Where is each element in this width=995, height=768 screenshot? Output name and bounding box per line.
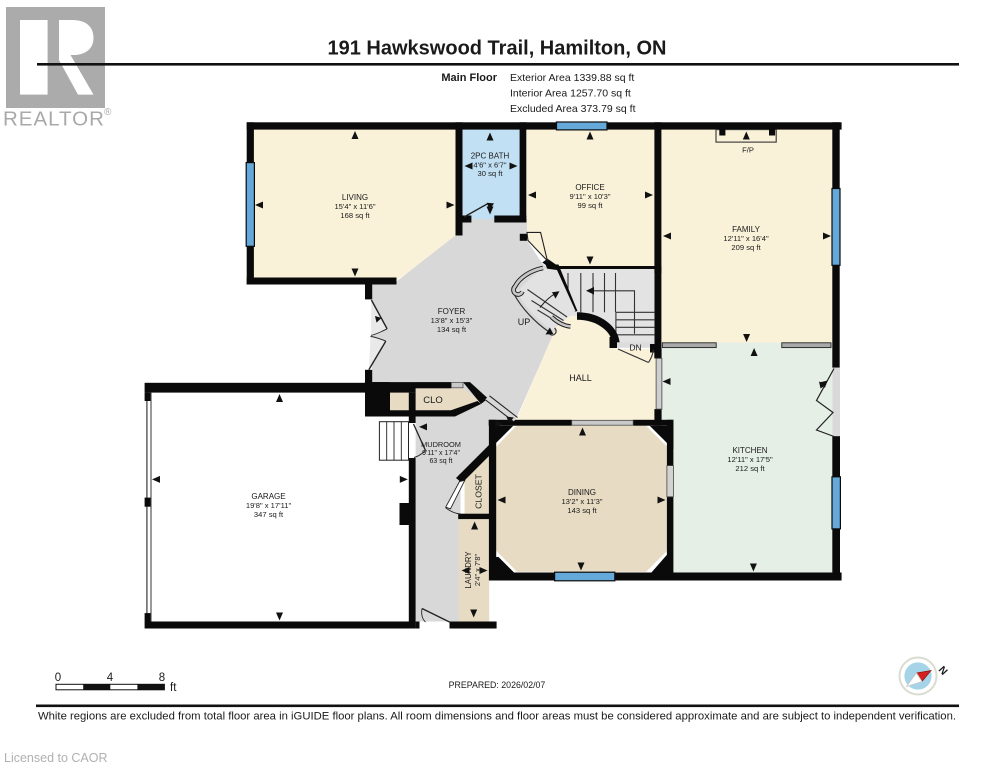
svg-text:ft: ft [170, 682, 177, 694]
svg-text:REALTOR: REALTOR [3, 108, 105, 131]
svg-text:CLOSET: CLOSET [474, 473, 484, 508]
svg-text:143 sq ft: 143 sq ft [567, 506, 597, 515]
svg-text:12'11" x 17'5": 12'11" x 17'5" [727, 455, 773, 464]
svg-text:19'8" x 17'11": 19'8" x 17'11" [246, 501, 292, 510]
svg-text:347 sq ft: 347 sq ft [254, 510, 284, 519]
svg-text:Main Floor: Main Floor [441, 72, 497, 84]
svg-text:4'6" x 6'7": 4'6" x 6'7" [473, 160, 507, 169]
svg-text:209 sq ft: 209 sq ft [731, 243, 761, 252]
svg-text:HALL: HALL [569, 373, 592, 383]
svg-text:CLO: CLO [423, 395, 443, 406]
svg-text:DINING: DINING [568, 488, 596, 497]
svg-text:White regions are excluded fro: White regions are excluded from total fl… [38, 711, 956, 723]
svg-text:63 sq ft: 63 sq ft [430, 458, 453, 465]
svg-text:13'2" x 11'3": 13'2" x 11'3" [561, 497, 602, 506]
svg-text:15'4" x 11'6": 15'4" x 11'6" [334, 202, 375, 211]
svg-text:212 sq ft: 212 sq ft [735, 464, 765, 473]
svg-text:168 sq ft: 168 sq ft [340, 211, 370, 220]
svg-text:OFFICE: OFFICE [575, 183, 604, 192]
svg-text:FOYER: FOYER [438, 307, 466, 316]
svg-text:MUDROOM: MUDROOM [421, 440, 461, 449]
svg-text:GARAGE: GARAGE [251, 492, 285, 501]
svg-text:12'11" x 16'4": 12'11" x 16'4" [723, 234, 769, 243]
svg-text:0: 0 [55, 672, 61, 684]
svg-text:UP: UP [518, 317, 531, 327]
svg-text:4: 4 [107, 672, 114, 684]
svg-text:8: 8 [159, 672, 165, 684]
svg-text:LIVING: LIVING [342, 193, 368, 202]
svg-text:191 Hawkswood Trail, Hamilton,: 191 Hawkswood Trail, Hamilton, ON [328, 38, 667, 60]
svg-text:PREPARED: 2026/02/07: PREPARED: 2026/02/07 [449, 680, 546, 690]
svg-text:F/P: F/P [742, 146, 754, 155]
svg-text:Licensed to CAOR: Licensed to CAOR [4, 751, 108, 765]
svg-text:FAMILY: FAMILY [732, 225, 761, 234]
svg-text:13'8" x 15'3": 13'8" x 15'3" [431, 316, 473, 325]
svg-text:9'11" x 17'4": 9'11" x 17'4" [422, 450, 460, 457]
svg-text:Exterior Area 1339.88 sq ft: Exterior Area 1339.88 sq ft [510, 72, 634, 84]
svg-text:®: ® [104, 107, 112, 118]
svg-text:KITCHEN: KITCHEN [732, 446, 767, 455]
svg-text:Excluded Area 373.79 sq ft: Excluded Area 373.79 sq ft [510, 103, 636, 115]
svg-text:DN: DN [629, 343, 641, 353]
svg-text:N: N [936, 664, 950, 678]
svg-text:99 sq ft: 99 sq ft [578, 201, 604, 210]
svg-text:134 sq ft: 134 sq ft [437, 325, 467, 334]
svg-text:30 sq ft: 30 sq ft [478, 169, 504, 178]
svg-text:9'11" x 10'3": 9'11" x 10'3" [569, 192, 610, 201]
svg-text:2PC BATH: 2PC BATH [471, 152, 510, 161]
svg-text:Interior Area 1257.70 sq ft: Interior Area 1257.70 sq ft [510, 88, 631, 100]
